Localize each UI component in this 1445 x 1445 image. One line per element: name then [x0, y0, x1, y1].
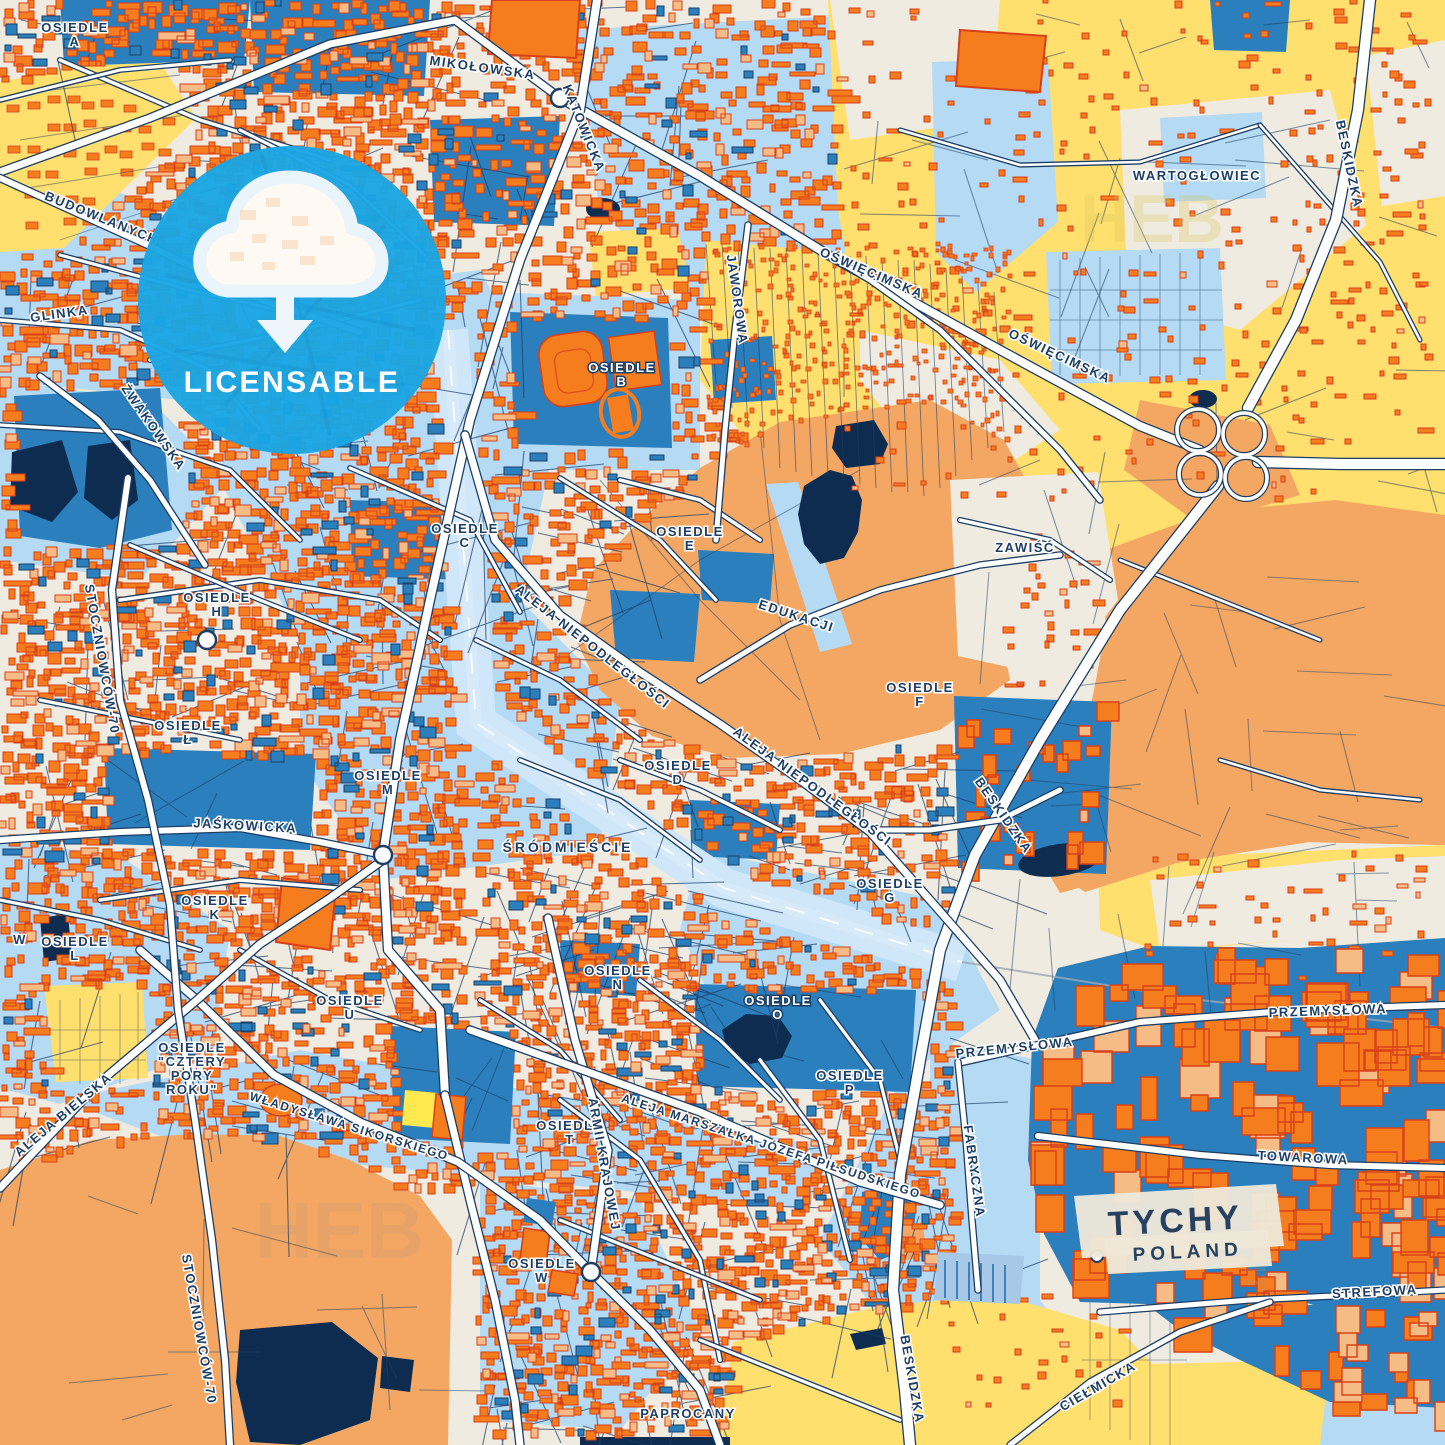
svg-text:OSIEDLE: OSIEDLE: [154, 718, 222, 733]
svg-text:W: W: [13, 932, 27, 947]
svg-text:B: B: [617, 374, 628, 389]
svg-text:E: E: [685, 538, 695, 553]
svg-text:N: N: [613, 977, 624, 992]
svg-text:OSIEDLE: OSIEDLE: [816, 1068, 884, 1083]
svg-text:F: F: [915, 694, 924, 709]
svg-text:OSIEDLE: OSIEDLE: [886, 680, 954, 695]
svg-text:OSIEDLE: OSIEDLE: [183, 590, 251, 605]
svg-text:OSIEDLE: OSIEDLE: [744, 993, 812, 1008]
svg-text:LICENSABLE: LICENSABLE: [184, 366, 401, 399]
svg-text:ŚRÓDMIEŚCIE: ŚRÓDMIEŚCIE: [502, 838, 633, 855]
svg-text:ROKU": ROKU": [166, 1082, 218, 1097]
svg-text:OSIEDLE: OSIEDLE: [41, 20, 109, 35]
svg-text:OSIEDLE: OSIEDLE: [656, 524, 724, 539]
svg-text:M: M: [382, 782, 394, 797]
svg-text:PORY: PORY: [171, 1068, 213, 1083]
svg-text:OSIEDLE: OSIEDLE: [584, 963, 652, 978]
svg-text:A: A: [70, 34, 81, 49]
svg-text:L: L: [70, 948, 79, 963]
svg-text:P: P: [845, 1082, 855, 1097]
svg-text:HEB: HEB: [1080, 181, 1224, 257]
svg-text:H: H: [212, 604, 223, 619]
svg-text:OSIEDLE: OSIEDLE: [431, 521, 499, 536]
svg-text:G: G: [884, 890, 896, 905]
svg-text:K: K: [210, 907, 221, 922]
svg-text:OSIEDLE: OSIEDLE: [158, 1040, 226, 1055]
svg-text:TYCHY: TYCHY: [1107, 1199, 1244, 1244]
svg-text:D: D: [673, 772, 684, 787]
svg-text:W: W: [535, 1270, 549, 1285]
svg-text:"CZTERY: "CZTERY: [158, 1054, 226, 1069]
svg-text:OSIEDLE: OSIEDLE: [856, 876, 924, 891]
svg-text:ZAWIŚĆ: ZAWIŚĆ: [995, 540, 1055, 555]
svg-text:OSIEDLE: OSIEDLE: [181, 893, 249, 908]
svg-text:PAPROCANY: PAPROCANY: [640, 1406, 736, 1421]
svg-text:HEB: HEB: [255, 1186, 424, 1275]
svg-text:OSIEDLE: OSIEDLE: [41, 934, 109, 949]
svg-text:U: U: [345, 1007, 356, 1022]
svg-text:OSIEDLE: OSIEDLE: [354, 768, 422, 783]
svg-text:OSIEDLE: OSIEDLE: [508, 1256, 576, 1271]
svg-text:OSIEDLE: OSIEDLE: [644, 758, 712, 773]
svg-text:Ł: Ł: [183, 732, 192, 747]
svg-text:C: C: [460, 535, 471, 550]
svg-text:WARTOGŁOWIEC: WARTOGŁOWIEC: [1133, 168, 1261, 183]
svg-text:OSIEDLE: OSIEDLE: [588, 360, 656, 375]
svg-text:OSIEDLE: OSIEDLE: [316, 993, 384, 1008]
svg-text:T: T: [565, 1132, 574, 1147]
svg-text:O: O: [772, 1007, 784, 1022]
